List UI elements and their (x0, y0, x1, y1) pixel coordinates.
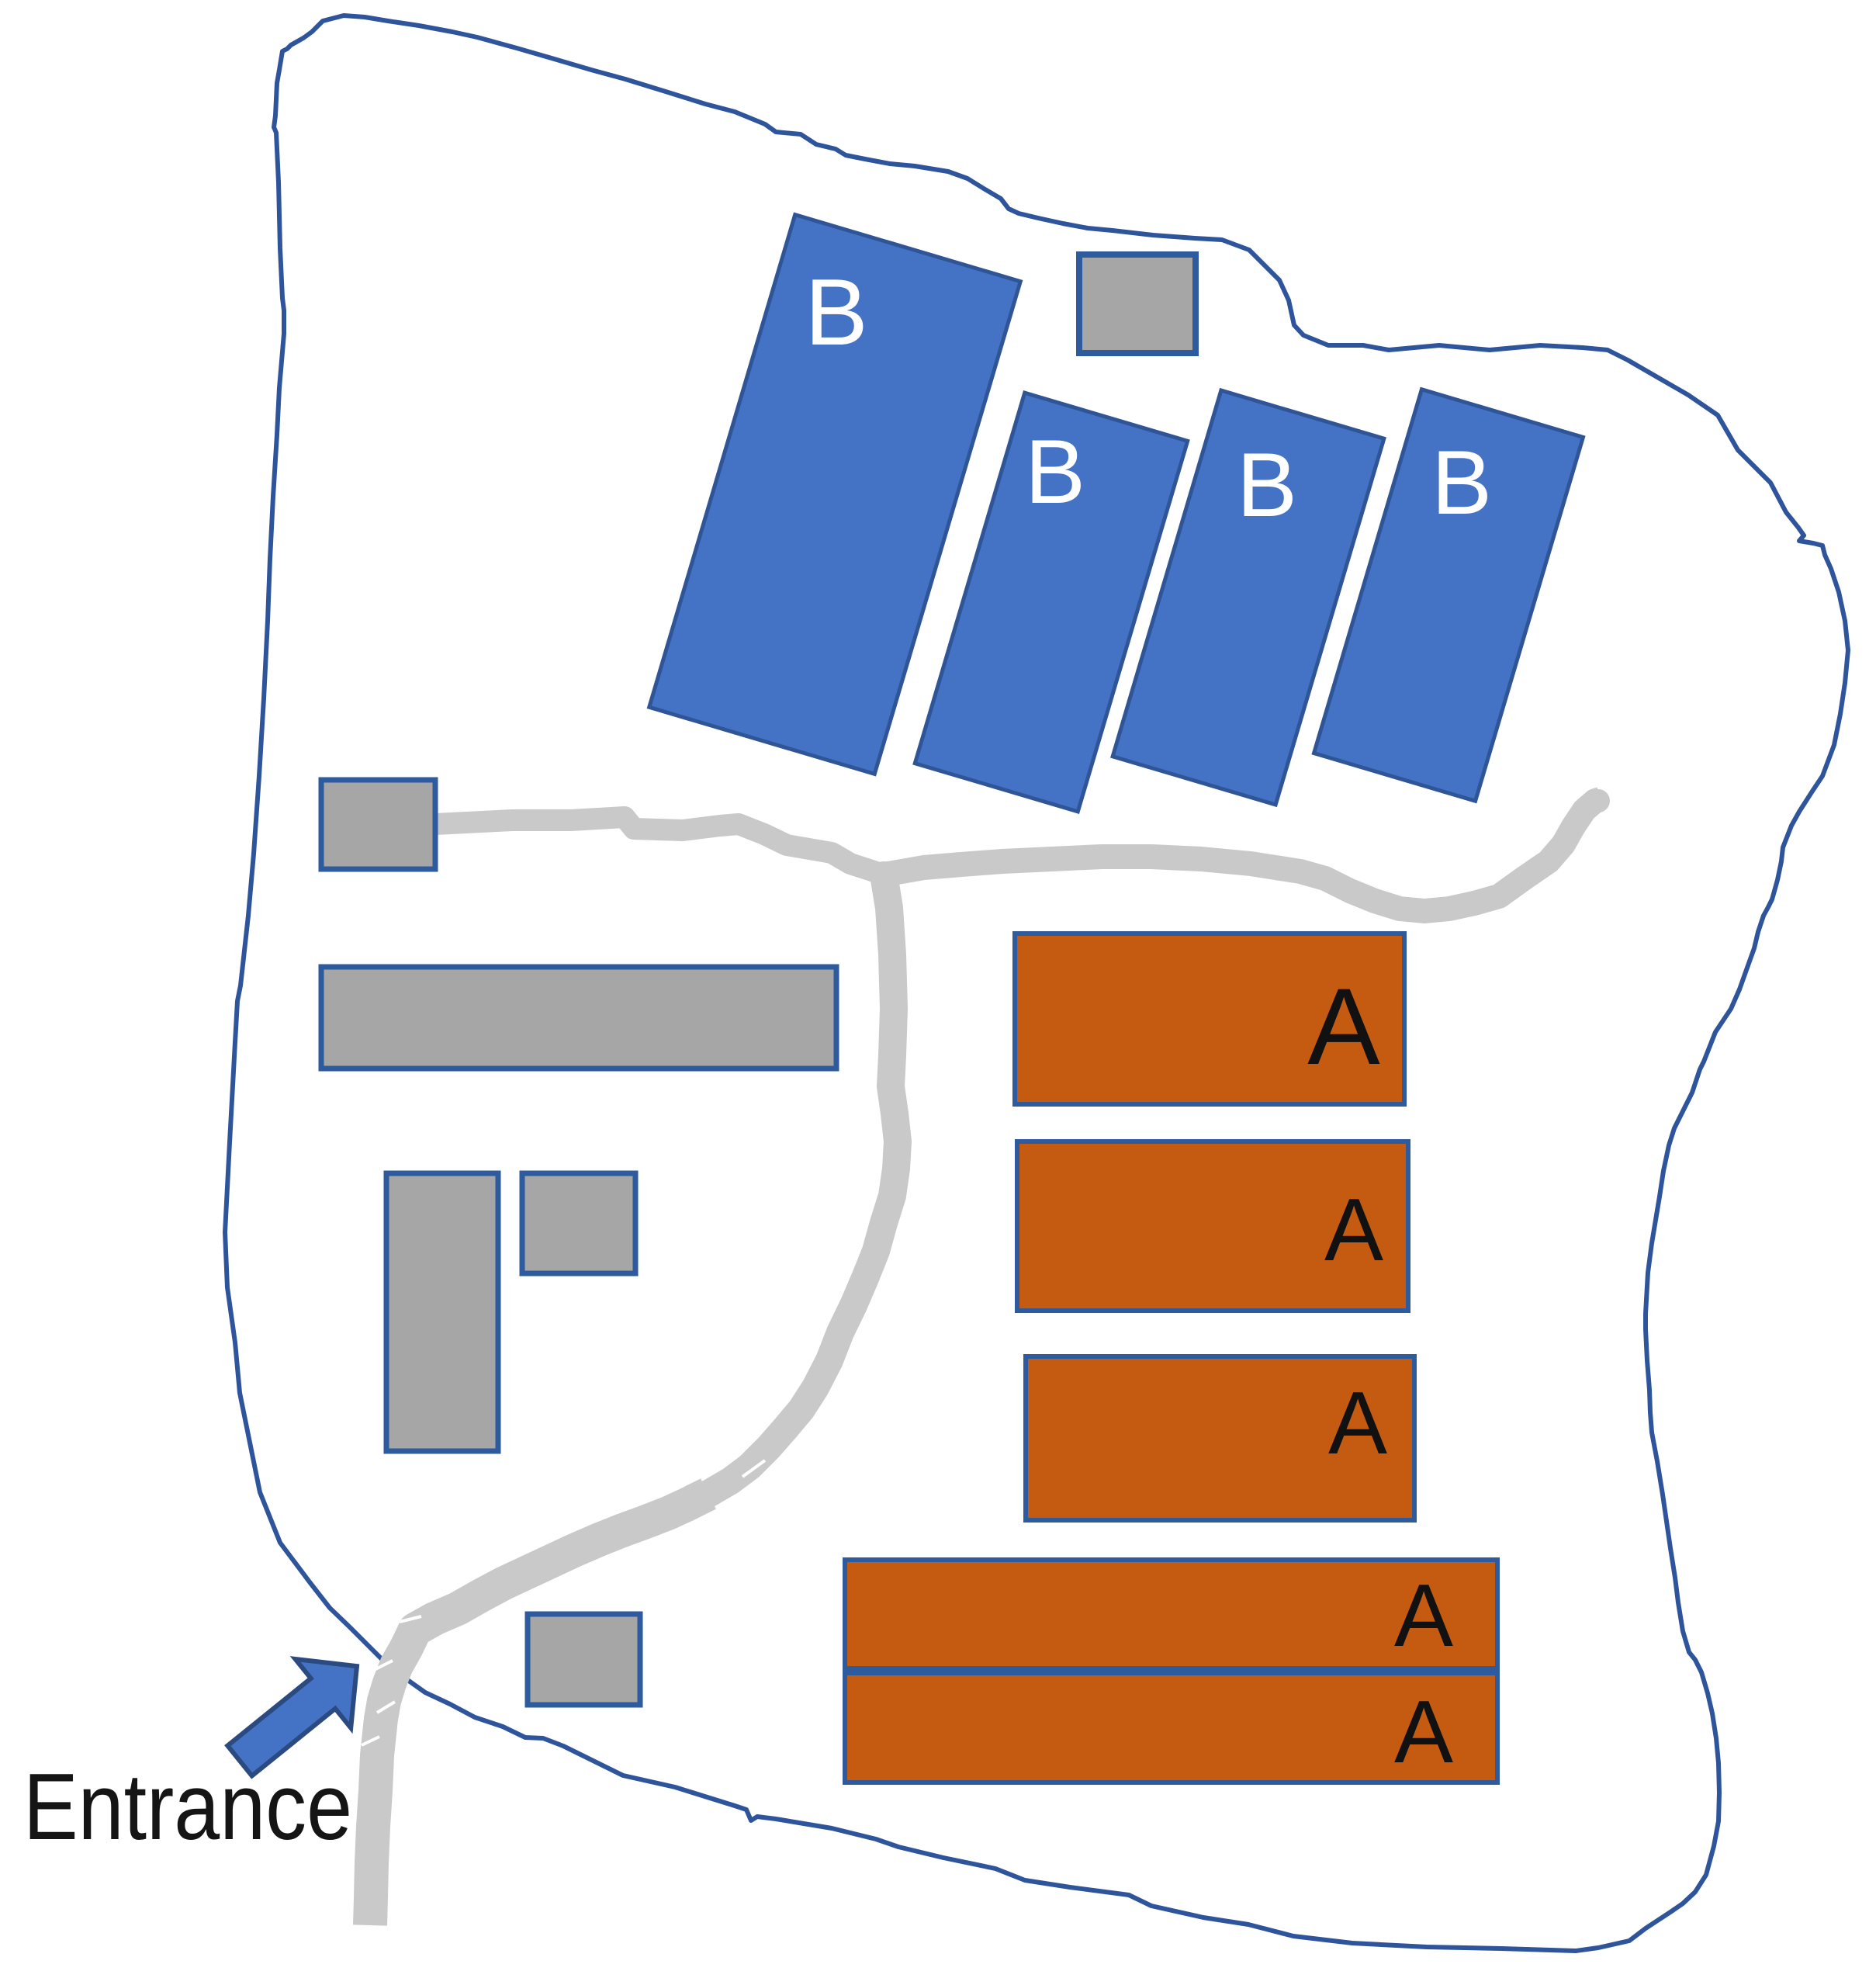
svg-text:B: B (805, 259, 867, 365)
svg-text:A: A (1324, 1181, 1383, 1280)
svg-text:B: B (1025, 421, 1085, 522)
svg-text:A: A (1307, 965, 1380, 1087)
svg-text:A: A (1328, 1374, 1387, 1473)
svg-text:B: B (1431, 431, 1492, 533)
svg-text:B: B (1237, 434, 1297, 535)
svg-text:A: A (1394, 1683, 1453, 1782)
svg-text:Entrance: Entrance (23, 1754, 352, 1859)
svg-text:A: A (1394, 1567, 1453, 1665)
